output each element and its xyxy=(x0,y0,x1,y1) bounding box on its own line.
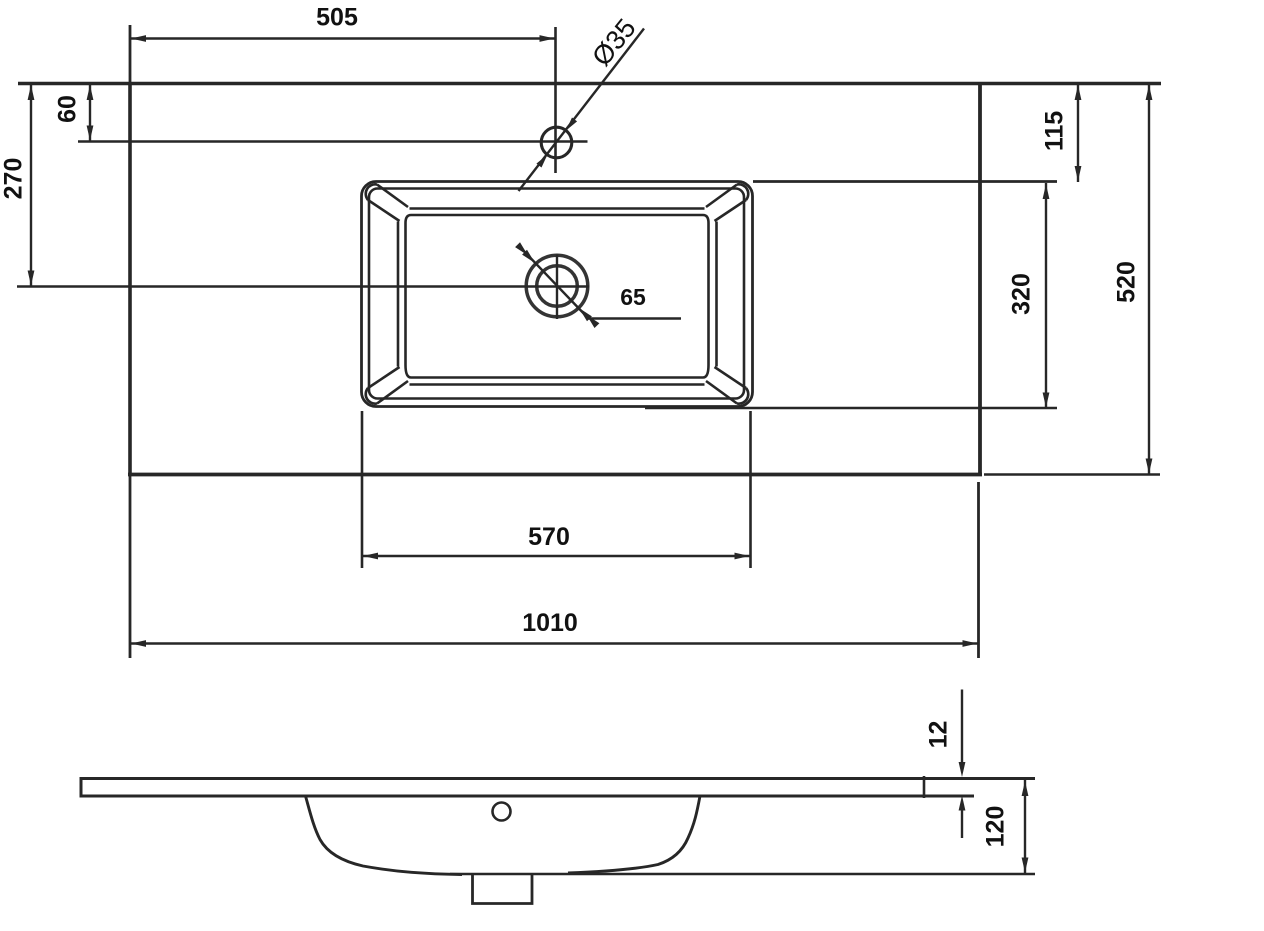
svg-text:115: 115 xyxy=(1041,111,1069,151)
svg-text:1010: 1010 xyxy=(522,609,578,637)
svg-text:520: 520 xyxy=(1113,261,1141,303)
svg-text:120: 120 xyxy=(982,806,1010,848)
svg-text:270: 270 xyxy=(0,158,28,200)
svg-text:320: 320 xyxy=(1008,273,1036,315)
svg-text:65: 65 xyxy=(620,284,646,310)
svg-text:505: 505 xyxy=(316,4,358,32)
svg-text:60: 60 xyxy=(54,95,82,123)
svg-text:570: 570 xyxy=(528,523,570,551)
svg-text:12: 12 xyxy=(925,721,953,749)
